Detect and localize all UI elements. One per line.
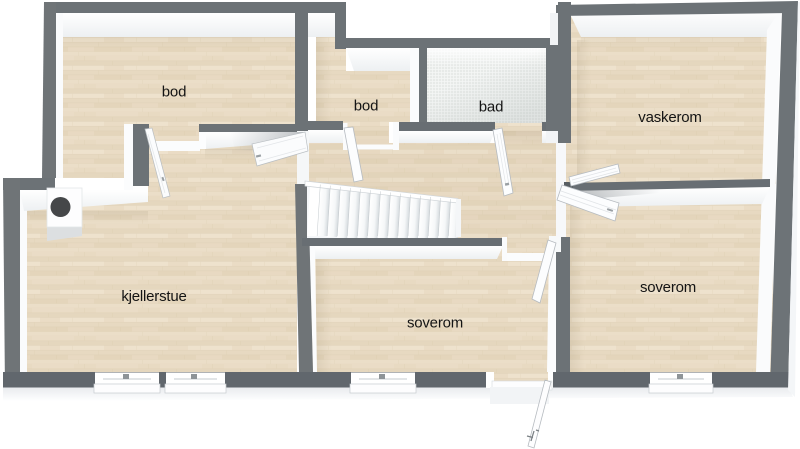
- svg-text:soverom: soverom: [640, 279, 696, 296]
- svg-text:bad: bad: [479, 99, 503, 116]
- svg-text:vaskerom: vaskerom: [638, 109, 701, 126]
- svg-text:kjellerstue: kjellerstue: [121, 288, 186, 305]
- svg-text:bod: bod: [354, 98, 378, 115]
- svg-text:bod: bod: [162, 84, 186, 101]
- svg-text:soverom: soverom: [407, 315, 463, 332]
